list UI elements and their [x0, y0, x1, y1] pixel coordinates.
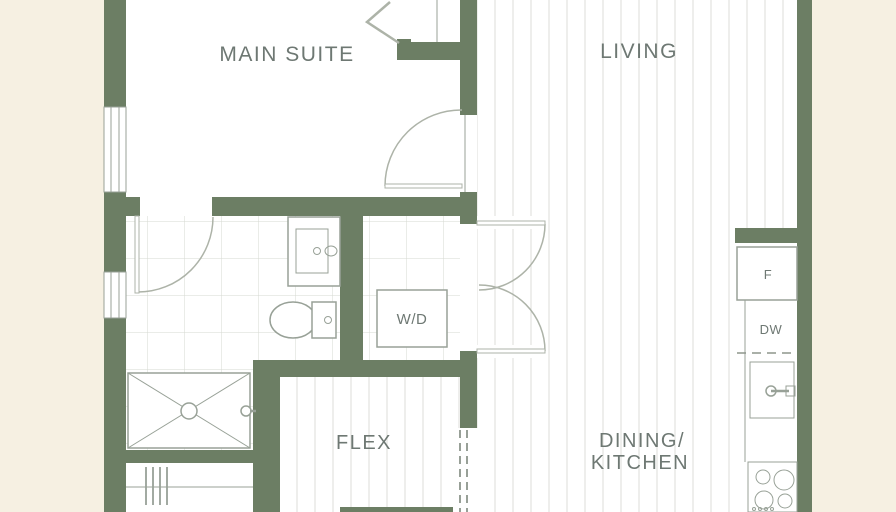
- washer-dryer-label: W/D: [397, 311, 428, 328]
- toilet: [270, 302, 336, 338]
- vanity-sink: [288, 217, 340, 286]
- main-suite-label: MAIN SUITE: [219, 43, 354, 66]
- wall-bottom-bar: [340, 507, 453, 512]
- living-label: LIVING: [600, 40, 678, 63]
- dining-kitchen-label-line2: KITCHEN: [591, 452, 689, 474]
- window-mainsuite: [104, 107, 126, 192]
- wall-bath-corner: [126, 197, 140, 216]
- wall-divider-mid: [460, 192, 477, 224]
- fridge-label: F: [764, 267, 772, 282]
- flex-label: FLEX: [336, 432, 392, 454]
- wall-shower-bottom: [104, 450, 253, 463]
- washer-dryer: W/D: [377, 290, 447, 347]
- wall-shower-right: [253, 360, 280, 512]
- dining-kitchen-label-line1: DINING/: [599, 430, 685, 452]
- dishwasher-label: DW: [760, 322, 783, 337]
- wall-divider-top: [460, 0, 477, 115]
- wall-right: [797, 0, 812, 512]
- wall-flex-top: [253, 360, 477, 377]
- wall-left-mid: [104, 192, 126, 272]
- shower: [128, 373, 256, 448]
- wall-bath-laundry: [340, 216, 363, 377]
- wall-left-bottom: [104, 318, 126, 512]
- wall-entry-stub-cap: [397, 39, 411, 47]
- wall-mainsuite-bottom: [212, 197, 477, 216]
- wall-left-top: [104, 0, 126, 107]
- wall-kitchen-stub: [735, 228, 812, 243]
- flex-opening-dashed: [457, 428, 479, 512]
- window-bathroom: [104, 272, 126, 318]
- floor-plan: W/D F DW MAIN SUITE LIVING FLEX DINING/: [0, 0, 896, 512]
